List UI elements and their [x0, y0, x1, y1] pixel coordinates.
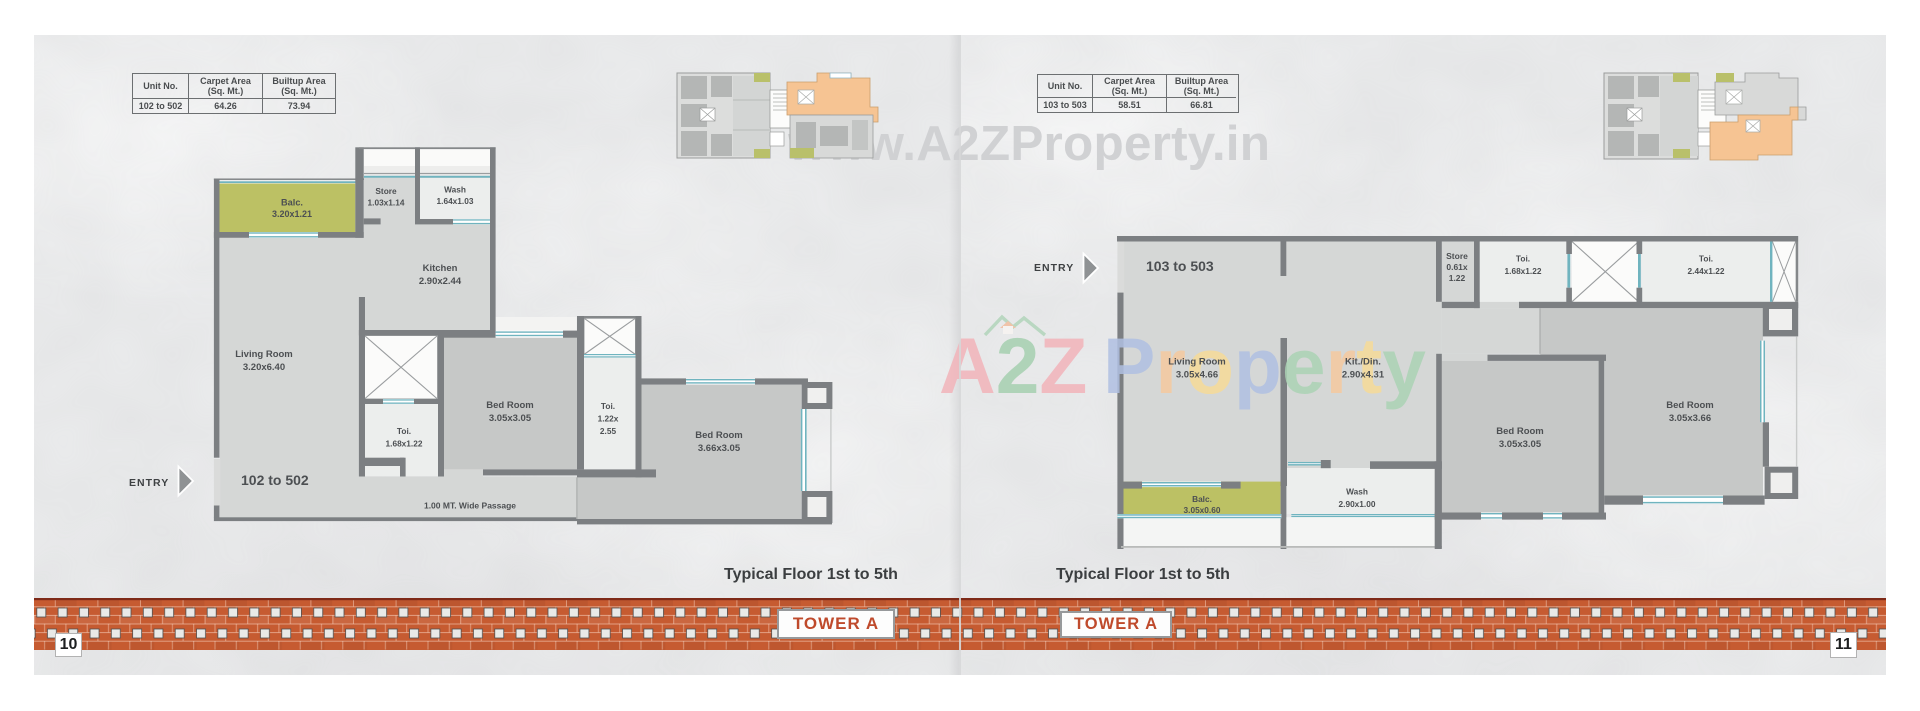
svg-text:3.05x3.05: 3.05x3.05: [489, 413, 532, 424]
svg-text:3.20x6.40: 3.20x6.40: [243, 362, 285, 373]
svg-text:3.05x3.66: 3.05x3.66: [1669, 413, 1711, 424]
svg-text:2.44x1.22: 2.44x1.22: [1688, 266, 1725, 276]
svg-text:1.22: 1.22: [1449, 273, 1466, 283]
svg-text:Balc.: Balc.: [281, 198, 303, 208]
svg-text:Balc.: Balc.: [1192, 494, 1212, 504]
svg-text:2.90x4.31: 2.90x4.31: [1342, 370, 1385, 381]
svg-text:Toi.: Toi.: [601, 401, 615, 411]
svg-text:Wash: Wash: [1346, 487, 1368, 497]
svg-text:Living Room: Living Room: [235, 349, 293, 360]
svg-text:Toi.: Toi.: [397, 426, 411, 436]
svg-text:Kitchen: Kitchen: [423, 263, 458, 274]
svg-text:1.64x1.03: 1.64x1.03: [437, 196, 474, 206]
svg-text:Toi.: Toi.: [1516, 254, 1530, 264]
svg-text:1.00 MT. Wide Passage: 1.00 MT. Wide Passage: [424, 501, 516, 511]
svg-text:2.90x2.44: 2.90x2.44: [419, 276, 462, 287]
svg-text:3.05x0.60: 3.05x0.60: [1184, 505, 1221, 515]
svg-text:102 to 502: 102 to 502: [241, 472, 309, 488]
svg-text:Store: Store: [1446, 251, 1468, 261]
svg-text:103 to 503: 103 to 503: [1146, 258, 1214, 274]
svg-text:Toi.: Toi.: [1699, 254, 1713, 264]
svg-text:2.90x1.00: 2.90x1.00: [1339, 499, 1376, 509]
svg-text:2.55: 2.55: [600, 426, 617, 436]
svg-text:1.22x: 1.22x: [598, 414, 619, 424]
svg-text:Bed Room: Bed Room: [1496, 426, 1544, 437]
svg-text:Bed Room: Bed Room: [695, 430, 743, 441]
svg-text:3.66x3.05: 3.66x3.05: [698, 443, 741, 454]
svg-text:Bed Room: Bed Room: [1666, 400, 1714, 411]
svg-text:3.05x4.66: 3.05x4.66: [1176, 370, 1218, 381]
svg-text:1.68x1.22: 1.68x1.22: [386, 439, 423, 449]
svg-text:1.68x1.22: 1.68x1.22: [1505, 266, 1542, 276]
svg-text:Store: Store: [375, 186, 397, 196]
svg-text:0.61x: 0.61x: [1446, 262, 1468, 272]
svg-text:3.05x3.05: 3.05x3.05: [1499, 439, 1542, 450]
svg-text:Living Room: Living Room: [1168, 357, 1226, 368]
svg-text:Kit./Din.: Kit./Din.: [1345, 357, 1381, 368]
svg-text:Bed Room: Bed Room: [486, 400, 534, 411]
svg-text:Wash: Wash: [444, 185, 466, 195]
svg-text:1.03x1.14: 1.03x1.14: [368, 198, 405, 208]
svg-text:3.20x1.21: 3.20x1.21: [272, 209, 312, 219]
